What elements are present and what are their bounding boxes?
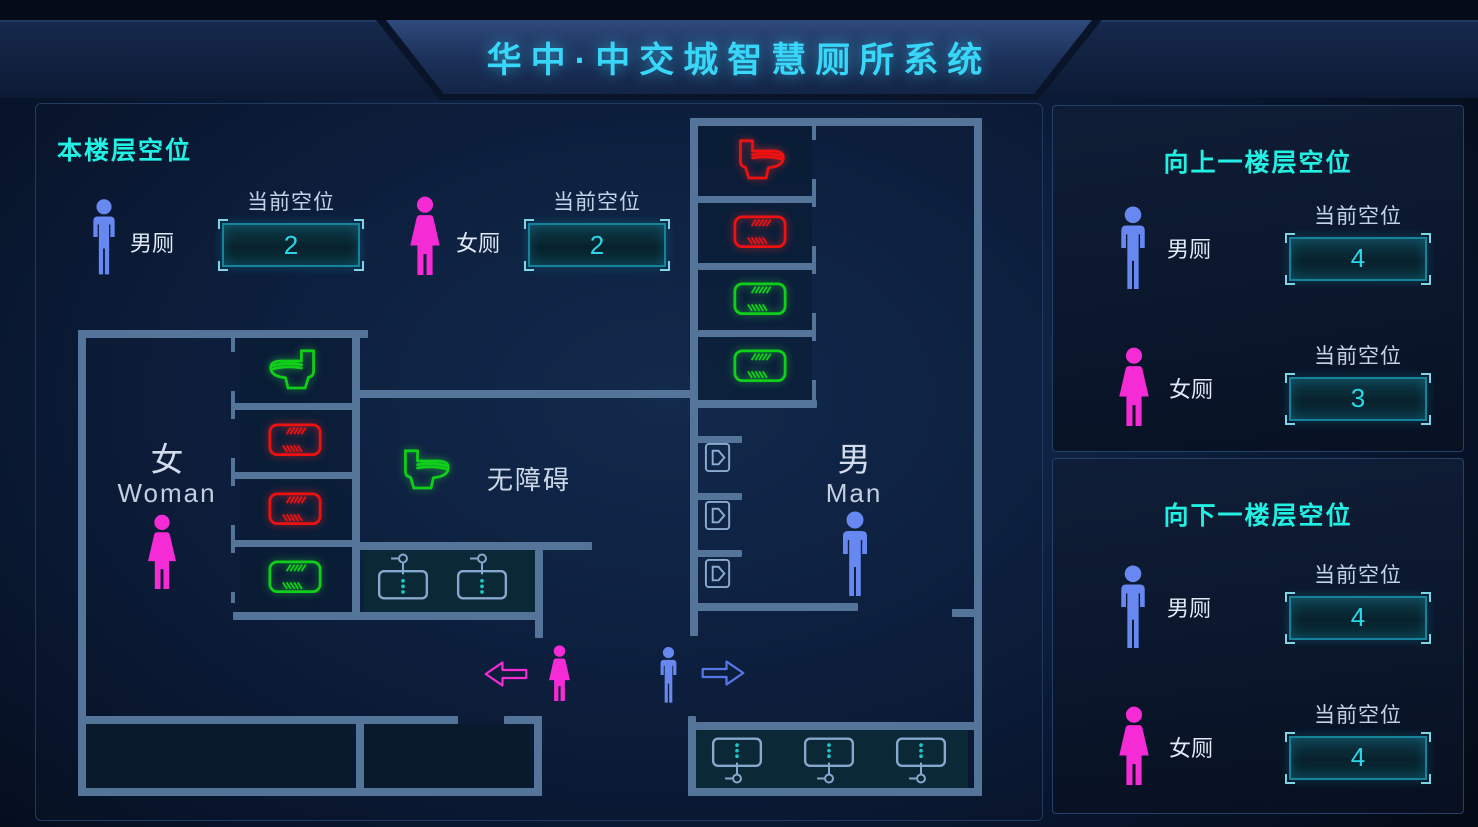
accessible-stall [392, 440, 458, 500]
wall [696, 722, 976, 730]
women-room-label: 女 Woman [108, 441, 226, 509]
vacancy-count: 3 [1351, 383, 1365, 414]
vacancy-count: 4 [1351, 243, 1365, 274]
counter-label: 当前空位 [247, 186, 335, 216]
sink-icon [451, 546, 513, 606]
wall [535, 550, 543, 638]
men-room-label: 男 Man [795, 441, 913, 509]
wall [233, 472, 359, 479]
wall [698, 196, 816, 203]
wall [78, 716, 458, 724]
wall [356, 390, 698, 398]
upper-floor-heading: 向上一楼层空位 [1053, 143, 1463, 179]
wall [534, 716, 542, 796]
women-label-en: Woman [108, 479, 226, 509]
wall [233, 540, 359, 547]
vacancy-count: 4 [1351, 742, 1365, 773]
current-floor-heading: 本楼层空位 [57, 131, 192, 167]
wall [698, 330, 816, 337]
lobby-sinks [706, 731, 952, 791]
women-entrance-arrow-icon [480, 659, 532, 689]
sink-icon [798, 731, 860, 791]
wall [690, 118, 698, 636]
men-room-male-icon [837, 510, 873, 598]
female-icon [1115, 345, 1153, 431]
sink-icon [372, 546, 434, 606]
men-label-en: Man [795, 479, 913, 509]
female-toilet-label: 女厕 [456, 226, 500, 258]
female-icon [1115, 704, 1153, 790]
smart-toilet-dashboard: 华中·中交城智慧厕所系统 本楼层空位 男厕 当前空位 2 女厕 当前空位 2 [0, 0, 1478, 827]
women-stall-4 [264, 557, 326, 597]
entrance-male-icon [656, 646, 681, 704]
vacancy-count-box: 4 [1289, 736, 1427, 780]
wall [78, 330, 86, 796]
top-strip [0, 0, 1478, 20]
counter-label: 当前空位 [553, 186, 641, 216]
header-banner: 华中·中交城智慧厕所系统 [386, 20, 1092, 94]
urinal-icon [703, 500, 734, 531]
counter-label: 当前空位 [1314, 200, 1402, 230]
accessible-label: 无障碍 [487, 460, 571, 497]
women-room-female-icon [144, 512, 180, 594]
entrance-female-icon [546, 644, 573, 704]
page-title: 华中·中交城智慧厕所系统 [487, 32, 992, 83]
lower-floor-heading: 向下一楼层空位 [1053, 496, 1463, 532]
urinal-icon [703, 442, 734, 473]
men-stall-3 [729, 279, 791, 319]
upper-floor-panel: 向上一楼层空位 男厕 当前空位 4 女厕 当前空位 3 [1052, 105, 1464, 452]
storage-room [364, 724, 530, 788]
women-stall-3 [264, 489, 326, 529]
women-stall-2 [264, 420, 326, 460]
wall [690, 603, 858, 611]
counter-label: 当前空位 [1314, 699, 1402, 729]
male-vacancy-counter: 当前空位 2 [216, 186, 366, 267]
men-stall-1 [728, 130, 792, 190]
male-toilet-label: 男厕 [1167, 232, 1211, 264]
women-label-cn: 女 [108, 441, 226, 479]
wall [688, 716, 696, 796]
washstand-sinks [372, 546, 513, 606]
vacancy-count-box: 4 [1289, 237, 1427, 281]
vacancy-count-box: 3 [1289, 377, 1427, 421]
wall [690, 118, 982, 126]
wall [698, 263, 816, 270]
vacancy-count: 4 [1351, 602, 1365, 633]
urinal-icon [703, 558, 734, 589]
wall [974, 118, 982, 796]
lower-floor-panel: 向下一楼层空位 男厕 当前空位 4 女厕 当前空位 4 [1052, 458, 1464, 814]
sink-icon [706, 731, 768, 791]
male-vacancy-counter: 当前空位 4 [1283, 559, 1433, 640]
sink-icon [890, 731, 952, 791]
female-toilet-label: 女厕 [1169, 372, 1213, 404]
men-stall-2 [729, 212, 791, 252]
stall-doors [231, 338, 235, 603]
wall [690, 400, 817, 408]
men-entrance-arrow-icon [697, 658, 749, 688]
vacancy-count: 2 [284, 230, 298, 261]
upper-female-row: 女厕 当前空位 3 [1115, 338, 1433, 438]
female-vacancy-counter: 当前空位 3 [1283, 340, 1433, 421]
wall [952, 609, 976, 617]
wall [78, 788, 542, 796]
wall [356, 716, 364, 796]
female-icon [406, 192, 444, 282]
vacancy-count-box: 2 [222, 223, 360, 267]
female-vacancy-counter: 当前空位 4 [1283, 699, 1433, 780]
male-vacancy-counter: 当前空位 4 [1283, 200, 1433, 281]
lower-female-row: 女厕 当前空位 4 [1115, 697, 1433, 797]
vacancy-count-box: 4 [1289, 596, 1427, 640]
storage-room [86, 724, 352, 788]
men-label-cn: 男 [795, 441, 913, 479]
vacancy-count-box: 2 [528, 223, 666, 267]
wall [233, 403, 359, 410]
stall-doors [812, 126, 816, 400]
counter-label: 当前空位 [1314, 559, 1402, 589]
female-vacancy-counter: 当前空位 2 [522, 186, 672, 267]
urinal-row [703, 442, 734, 589]
male-icon [1115, 564, 1151, 650]
upper-male-row: 男厕 当前空位 4 [1115, 198, 1433, 298]
counter-label: 当前空位 [1314, 340, 1402, 370]
lower-male-row: 男厕 当前空位 4 [1115, 557, 1433, 657]
male-icon [88, 192, 120, 282]
male-toilet-label: 男厕 [130, 226, 174, 258]
men-stall-4 [729, 346, 791, 386]
male-icon [1115, 205, 1151, 291]
vacancy-count: 2 [590, 230, 604, 261]
male-toilet-label: 男厕 [1167, 591, 1211, 623]
wall [78, 330, 368, 338]
wall [233, 612, 543, 620]
women-stall-1 [262, 340, 326, 400]
female-toilet-label: 女厕 [1169, 731, 1213, 763]
